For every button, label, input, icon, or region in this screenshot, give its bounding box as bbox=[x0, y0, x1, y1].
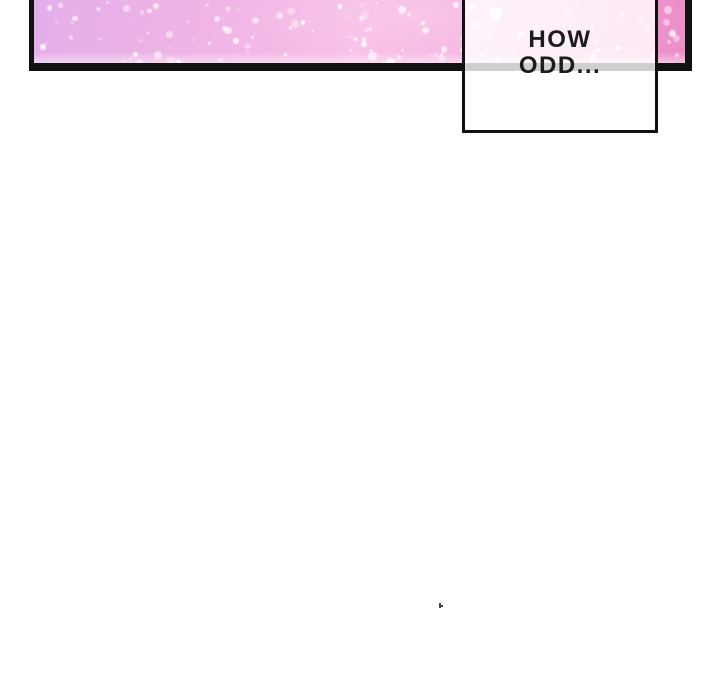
sparkle-dot bbox=[106, 1, 109, 4]
speech-box-lower-fill bbox=[465, 73, 655, 130]
sparkle-dot bbox=[192, 39, 195, 42]
sparkle-dot bbox=[71, 22, 74, 25]
sparkle-dot bbox=[167, 46, 170, 49]
sparkle-dot bbox=[396, 59, 398, 61]
sparkle-dot bbox=[287, 8, 295, 16]
sparkle-dot bbox=[222, 26, 227, 31]
sparkle-dot bbox=[359, 2, 365, 8]
sparkle-dot bbox=[441, 46, 447, 52]
sparkle-dot bbox=[222, 17, 225, 20]
sparkle-dot bbox=[58, 3, 63, 8]
sparkle-dot bbox=[133, 52, 138, 57]
sparkle-dot bbox=[206, 4, 208, 6]
speech-line-1: HOW bbox=[465, 27, 655, 53]
sparkle-dot bbox=[72, 16, 78, 22]
sparkle-dot bbox=[128, 16, 130, 18]
sparkle-dot bbox=[98, 38, 101, 41]
sparkle-dot bbox=[368, 52, 376, 60]
sparkle-dot bbox=[55, 20, 58, 23]
sparkle-dot bbox=[422, 27, 429, 34]
sparkle-dot bbox=[219, 58, 223, 62]
sparkle-dot bbox=[401, 49, 404, 52]
sparkle-dot bbox=[368, 27, 372, 31]
sparkle-dot bbox=[47, 5, 52, 10]
sparkle-dot bbox=[251, 36, 254, 39]
speech-line-2: ODD... bbox=[465, 53, 655, 74]
sparkle-dot bbox=[376, 2, 378, 4]
sparkle-dot bbox=[291, 20, 299, 28]
sparkle-dot bbox=[349, 49, 352, 52]
sparkle-dot bbox=[667, 40, 671, 44]
sparkle-dot bbox=[40, 44, 45, 49]
sparkle-dot bbox=[214, 16, 220, 22]
sparkle-dot bbox=[186, 20, 189, 23]
sparkle-dot bbox=[130, 57, 132, 59]
sparkle-dot bbox=[136, 59, 143, 63]
sparkle-dot bbox=[673, 35, 680, 42]
sparkle-dot bbox=[122, 60, 125, 63]
sparkle-dot bbox=[139, 39, 142, 42]
sparkle-dot bbox=[675, 53, 679, 57]
sparkle-dot bbox=[349, 36, 351, 38]
sparkle-dot bbox=[308, 20, 311, 23]
sparkle-dot bbox=[407, 12, 411, 16]
sparkle-dot bbox=[347, 15, 351, 19]
sparkle-dot bbox=[312, 30, 314, 32]
sparkle-dot bbox=[284, 53, 287, 56]
sparkle-dot bbox=[276, 12, 283, 19]
sparkle-dot bbox=[438, 55, 446, 63]
sparkle-dot bbox=[69, 35, 74, 40]
speech-box: HOW ODD... bbox=[462, 0, 658, 133]
sparkle-dot bbox=[166, 31, 173, 38]
sparkle-dot bbox=[338, 4, 342, 8]
comic-page: HOW ODD... bbox=[0, 0, 720, 700]
sparkle-dot bbox=[398, 6, 407, 15]
sparkle-dot bbox=[176, 60, 181, 63]
sparkle-dot bbox=[147, 32, 150, 35]
sparkle-dot bbox=[663, 19, 670, 26]
sparkle-dot bbox=[123, 5, 130, 12]
sparkle-dot bbox=[154, 51, 162, 59]
sparkle-dot bbox=[233, 38, 239, 44]
sparkle-dot bbox=[301, 20, 306, 25]
sparkle-dot bbox=[452, 26, 454, 28]
stray-ink-mark bbox=[439, 603, 441, 608]
speech-text: HOW ODD... bbox=[465, 0, 655, 74]
sparkle-dot bbox=[453, 2, 459, 8]
sparkle-dot bbox=[421, 21, 425, 25]
sparkle-dot bbox=[237, 7, 240, 10]
sparkle-dot bbox=[97, 7, 100, 10]
sparkle-dot bbox=[365, 29, 369, 33]
sparkle-dot bbox=[166, 57, 174, 63]
sparkle-dot bbox=[361, 41, 368, 48]
sparkle-dot bbox=[244, 43, 251, 50]
sparkle-dot bbox=[374, 11, 376, 13]
sparkle-dot bbox=[225, 6, 231, 12]
sparkle-dot bbox=[664, 6, 672, 14]
sparkle-dot bbox=[153, 3, 159, 9]
sparkle-dot bbox=[386, 58, 395, 63]
sparkle-dot bbox=[252, 17, 259, 24]
sparkle-dot bbox=[147, 9, 152, 14]
sparkle-dot bbox=[140, 10, 145, 15]
sparkle-dot bbox=[246, 51, 248, 53]
sparkle-dot bbox=[361, 11, 368, 18]
sparkle-dot bbox=[208, 42, 211, 45]
sparkle-dot bbox=[353, 37, 358, 42]
sparkle-dot bbox=[429, 54, 431, 56]
